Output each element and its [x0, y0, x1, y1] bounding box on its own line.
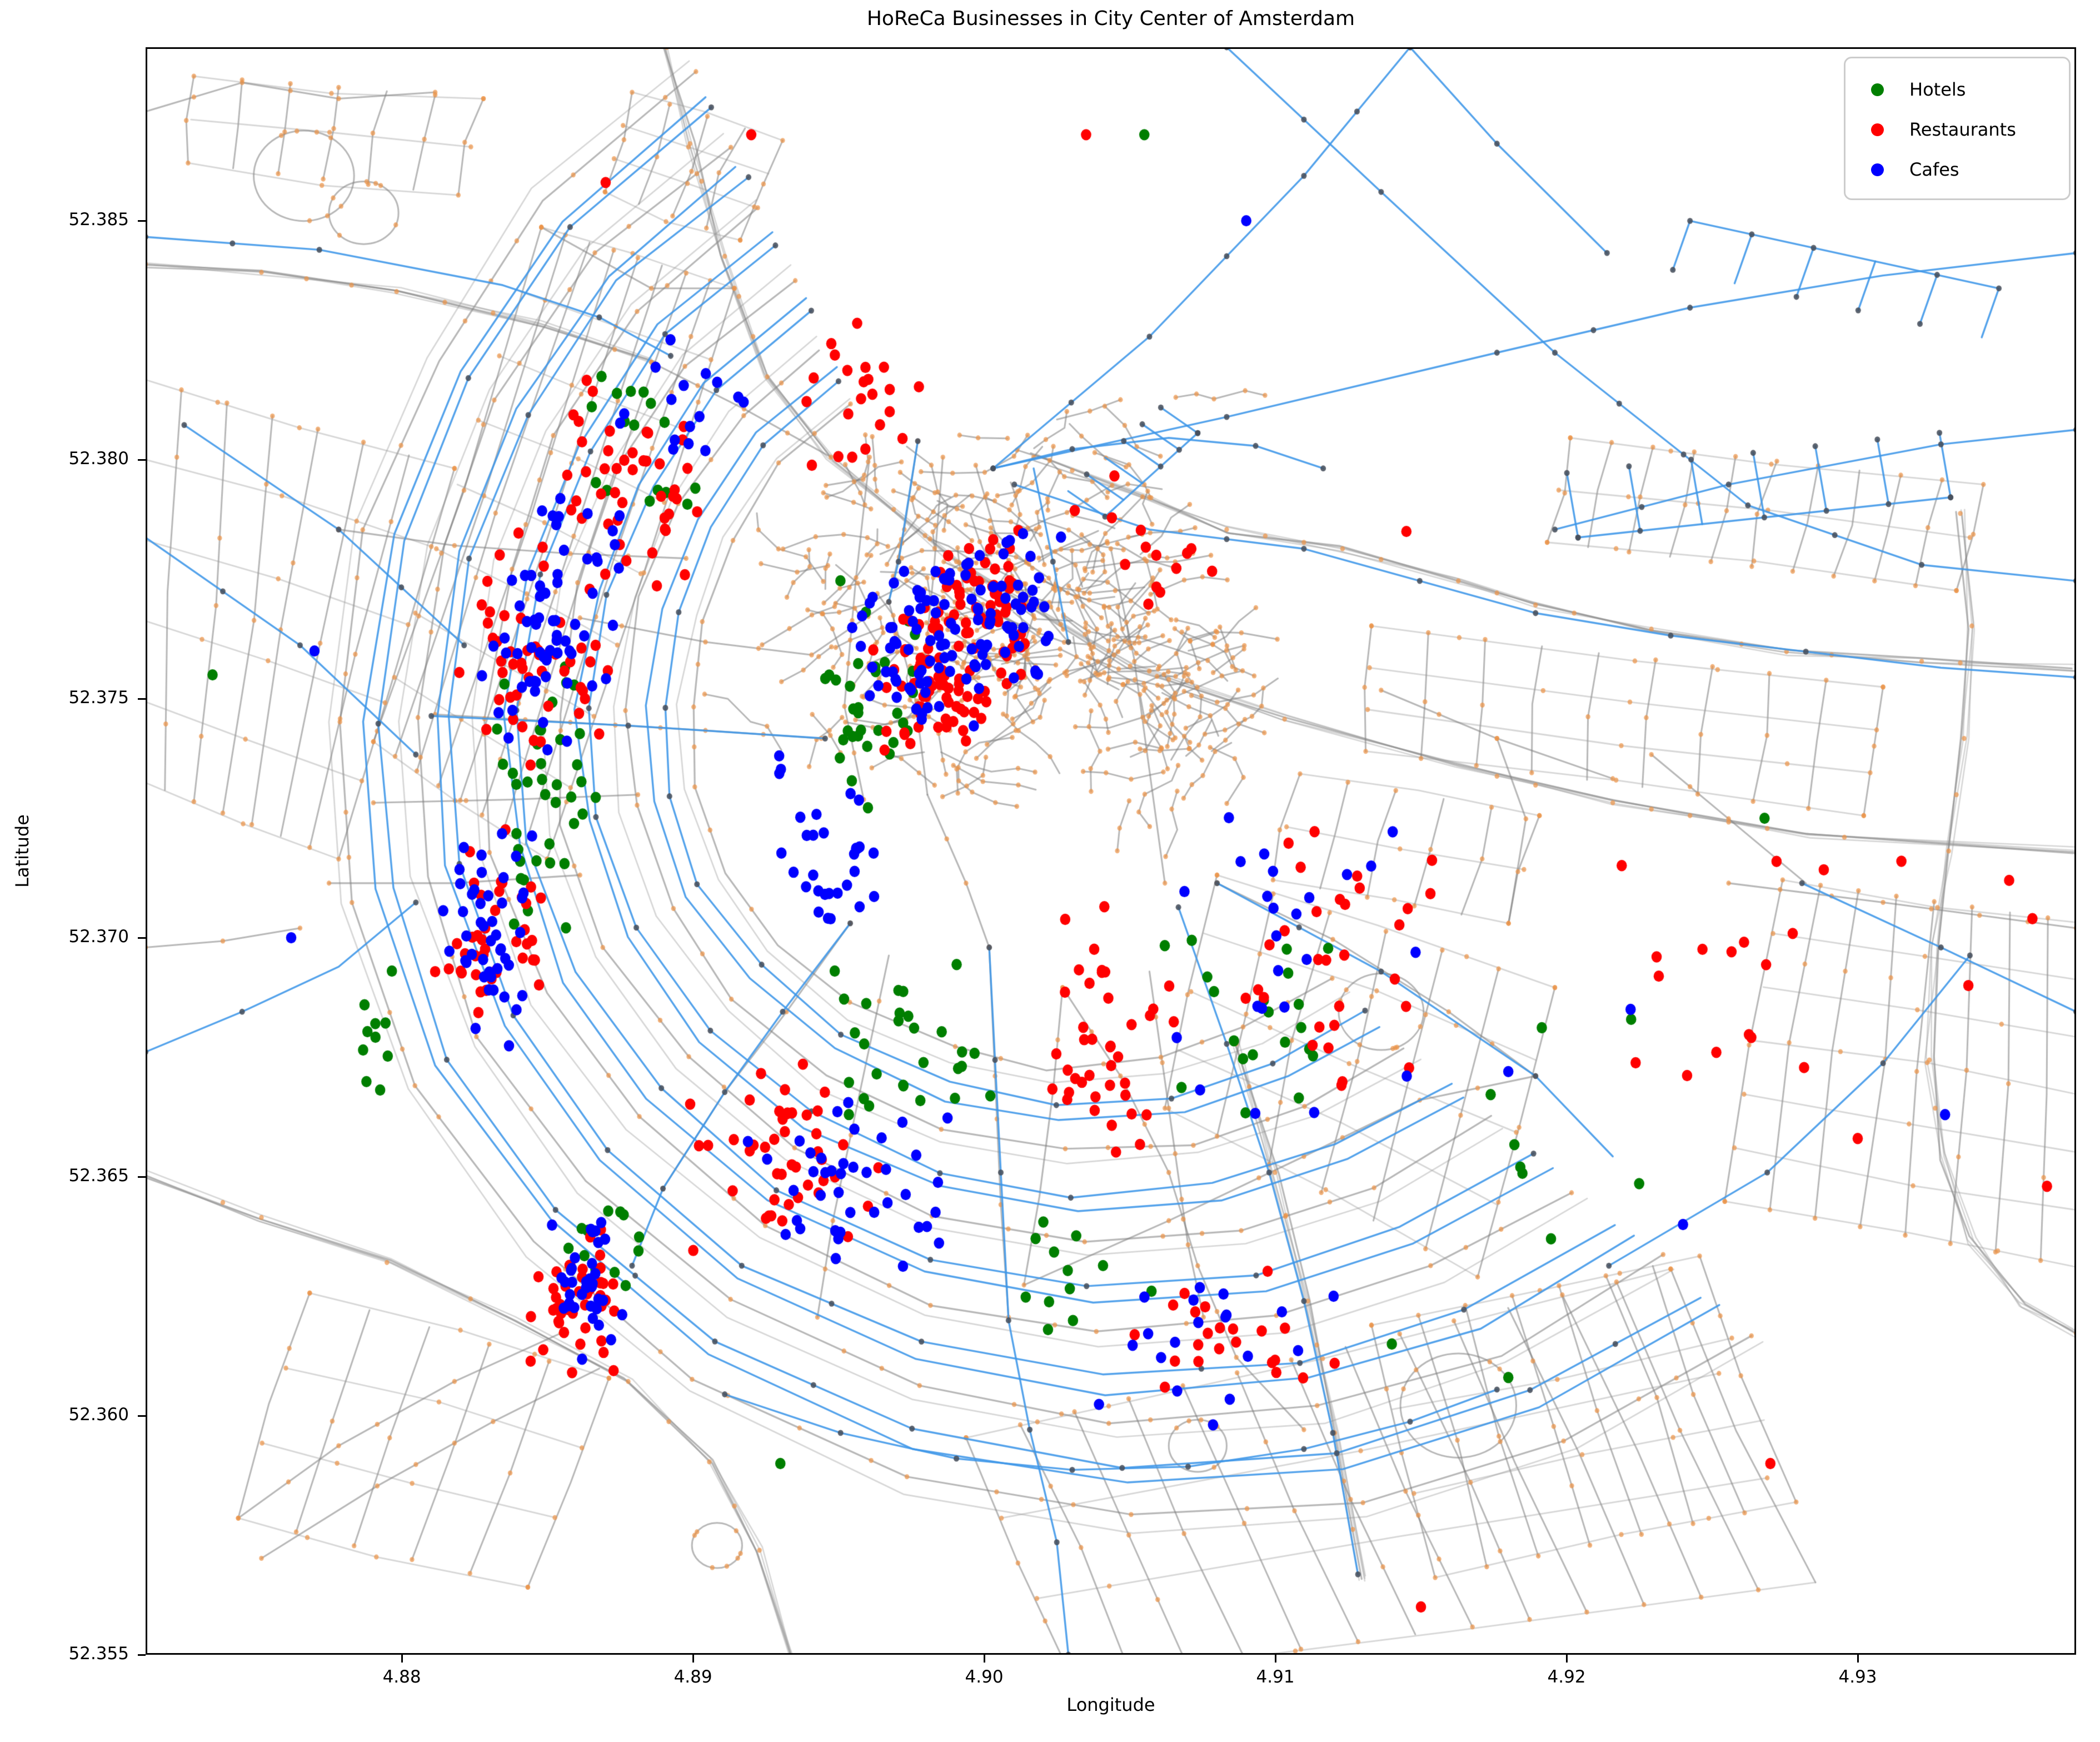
y-axis-label: Latitude: [12, 814, 33, 888]
legend-item-cafes: Cafes: [1845, 150, 2069, 190]
y-tick-label: 52.355: [11, 1644, 129, 1664]
y-tick-label: 52.370: [11, 927, 129, 947]
y-tick-mark: [138, 1654, 146, 1656]
x-tick-mark: [401, 1655, 403, 1663]
x-tick-label: 4.91: [1231, 1667, 1320, 1687]
x-tick-label: 4.92: [1522, 1667, 1611, 1687]
y-tick-label: 52.380: [11, 449, 129, 469]
y-tick-mark: [138, 1176, 146, 1178]
x-tick-label: 4.89: [649, 1667, 737, 1687]
legend: Hotels Restaurants Cafes: [1844, 57, 2071, 200]
plot-area-canvas: [146, 47, 2076, 1655]
x-tick-label: 4.88: [357, 1667, 446, 1687]
y-tick-mark: [138, 937, 146, 939]
legend-item-hotels: Hotels: [1845, 69, 2069, 110]
y-tick-label: 52.360: [11, 1405, 129, 1425]
y-tick-mark: [138, 459, 146, 461]
x-tick-label: 4.90: [940, 1667, 1029, 1687]
x-tick-mark: [984, 1655, 985, 1663]
y-tick-mark: [138, 220, 146, 222]
legend-label-cafes: Cafes: [1909, 159, 1959, 180]
figure: HoReCa Businesses in City Center of Amst…: [0, 0, 2100, 1742]
restaurants-marker-icon: [1871, 123, 1884, 136]
x-tick-mark: [692, 1655, 694, 1663]
x-axis-label: Longitude: [146, 1694, 2076, 1715]
y-tick-label: 52.365: [11, 1166, 129, 1186]
x-tick-mark: [1275, 1655, 1276, 1663]
y-tick-mark: [138, 1415, 146, 1417]
chart-title: HoReCa Businesses in City Center of Amst…: [146, 7, 2076, 31]
x-tick-mark: [1857, 1655, 1859, 1663]
x-tick-mark: [1566, 1655, 1568, 1663]
y-tick-label: 52.375: [11, 688, 129, 708]
x-tick-label: 4.93: [1813, 1667, 1902, 1687]
cafes-marker-icon: [1871, 163, 1884, 176]
legend-item-restaurants: Restaurants: [1845, 110, 2069, 150]
legend-label-hotels: Hotels: [1909, 79, 1966, 100]
hotels-marker-icon: [1871, 83, 1884, 96]
legend-label-restaurants: Restaurants: [1909, 119, 2016, 140]
y-tick-mark: [138, 698, 146, 700]
y-tick-label: 52.385: [11, 210, 129, 230]
